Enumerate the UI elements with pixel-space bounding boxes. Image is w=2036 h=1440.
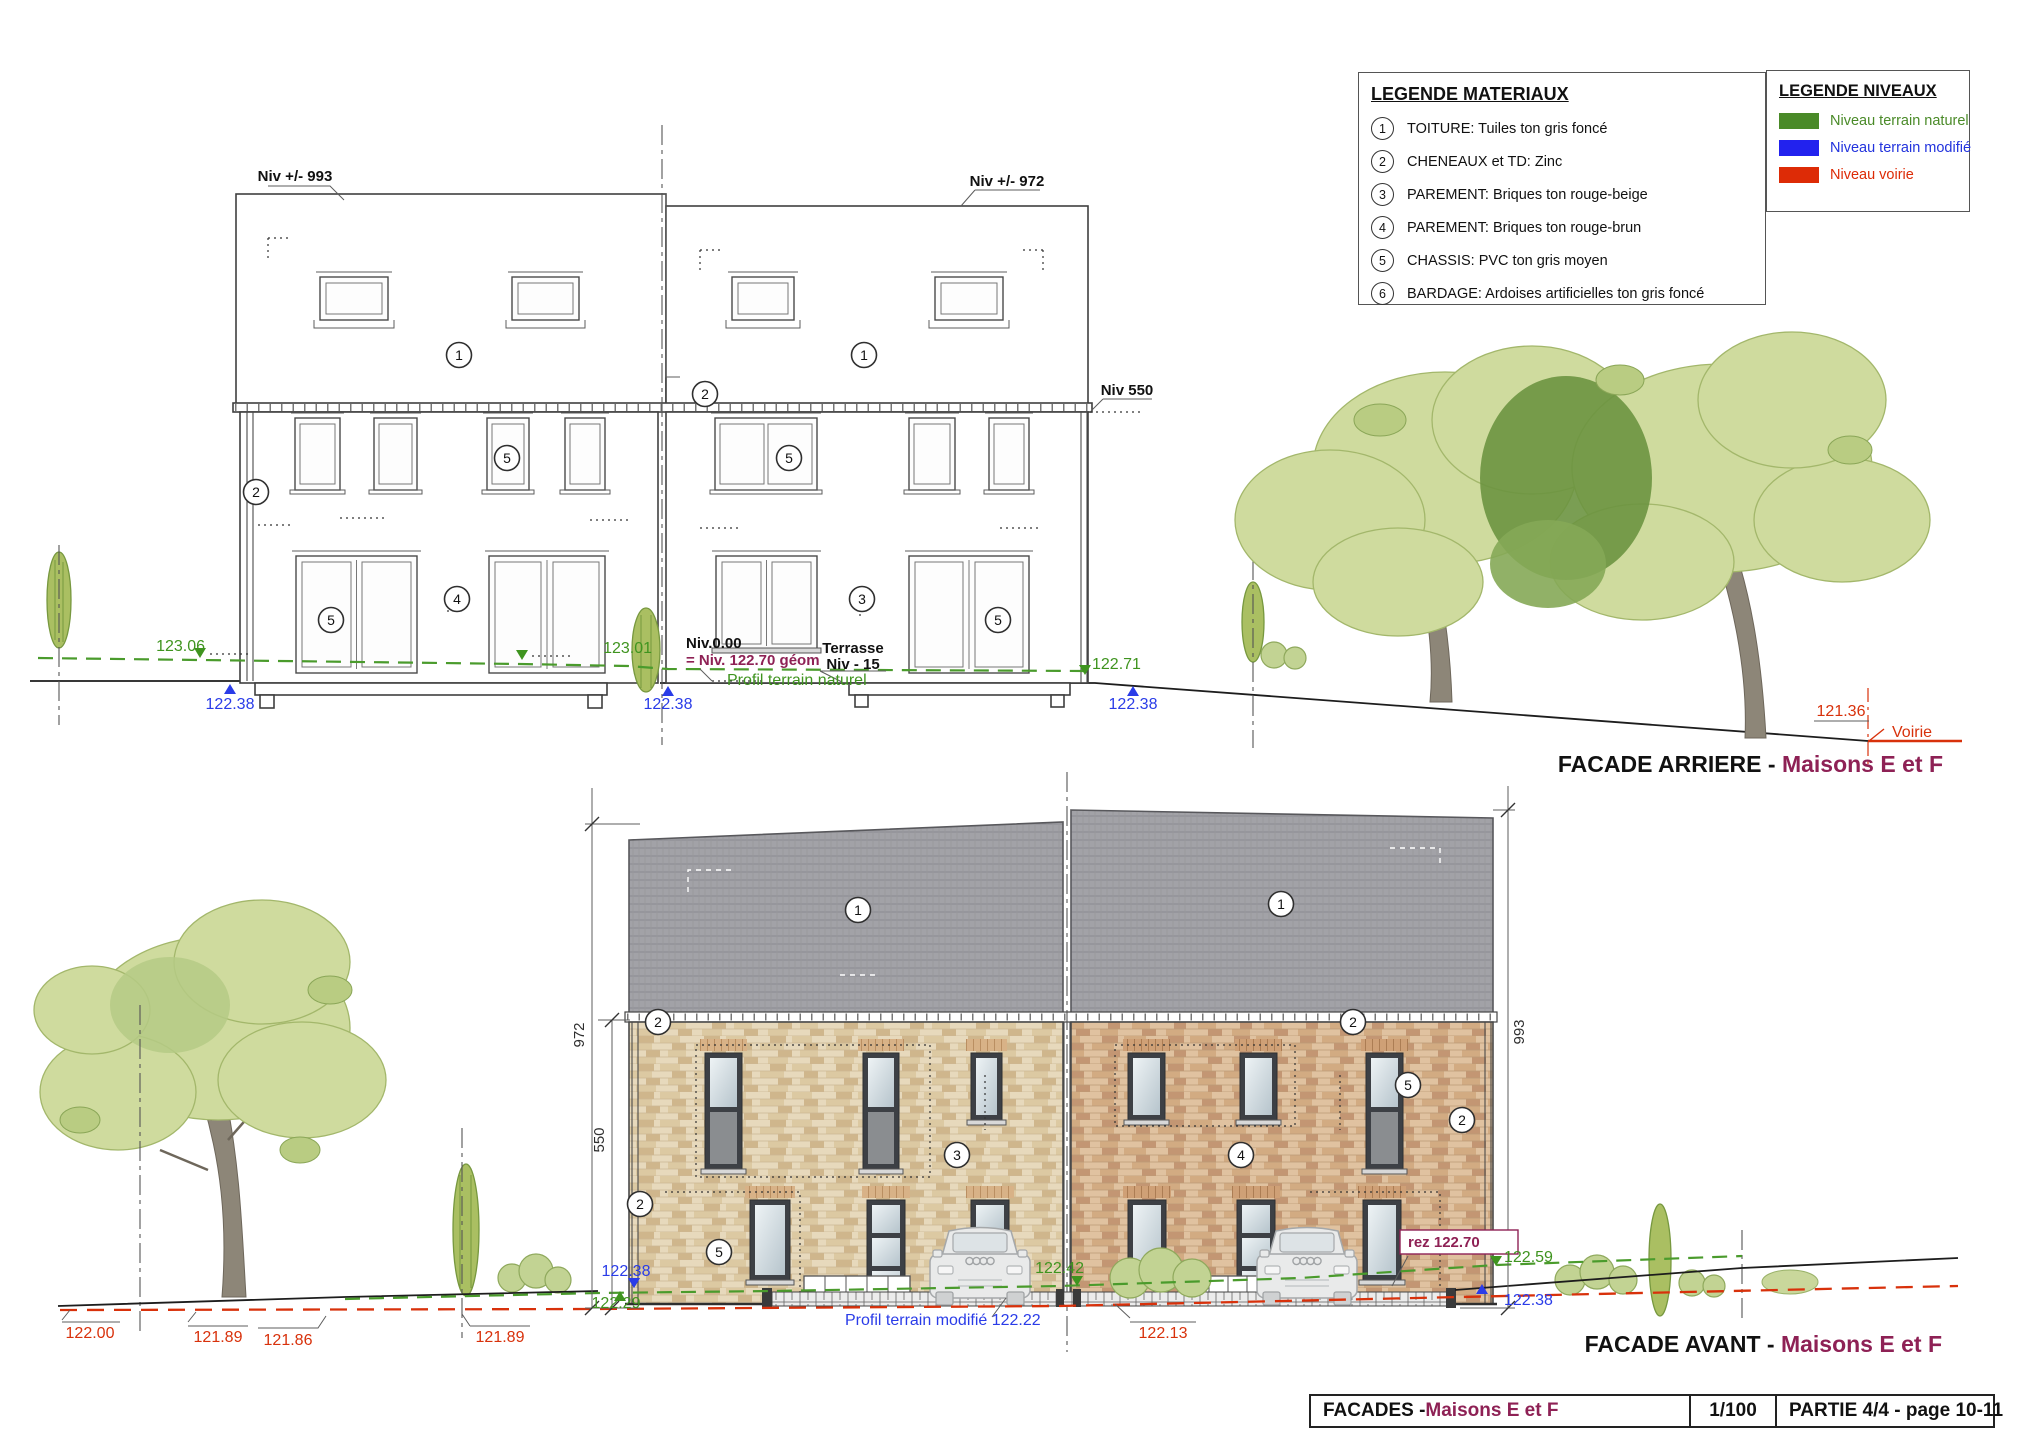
circled-number-icon: 2 bbox=[1371, 150, 1394, 173]
marker: 1 bbox=[1277, 896, 1285, 912]
title-block-title: FACADES - Maisons E et F bbox=[1311, 1396, 1689, 1426]
legend-item-label: PAREMENT: Briques ton rouge-brun bbox=[1407, 220, 1641, 236]
elev-122-38-front-left: 122.38 bbox=[602, 1263, 651, 1280]
sheet-title-prefix: FACADES - bbox=[1323, 1400, 1425, 1422]
elev-road-0: 122.00 bbox=[66, 1325, 115, 1342]
marker: 2 bbox=[654, 1014, 662, 1030]
marker: 5 bbox=[994, 612, 1002, 628]
legend-item: Niveau voirie bbox=[1779, 167, 1957, 183]
label-niv-550: Niv 550 bbox=[1101, 382, 1154, 399]
label-profil-naturel: Profil terrain naturel bbox=[727, 672, 867, 689]
legend-item-label: BARDAGE: Ardoises artificielles ton gris… bbox=[1407, 286, 1704, 302]
label-terrasse-niv: Niv - 15 bbox=[826, 656, 879, 673]
marker: 5 bbox=[327, 612, 335, 628]
architectural-drawing-sheet: 1 1 2 2 5 5 5 4 3 5 Niv +/- 993 Niv +/- … bbox=[0, 0, 2036, 1440]
label-niv-geom: = Niv. 122.70 géom bbox=[686, 652, 820, 669]
marker: 2 bbox=[701, 386, 709, 402]
elev-121-36: 121.36 bbox=[1817, 703, 1866, 720]
marker: 5 bbox=[715, 1244, 723, 1260]
circled-number-icon: 5 bbox=[1371, 249, 1394, 272]
marker: 2 bbox=[1458, 1112, 1466, 1128]
legend-item-label: TOITURE: Tuiles ton gris foncé bbox=[1407, 121, 1607, 137]
blue-swatch-icon bbox=[1779, 140, 1819, 156]
caption-facade-avant: FACADE AVANT - Maisons E et F bbox=[1585, 1331, 1942, 1357]
legend-item-label: CHASSIS: PVC ton gris moyen bbox=[1407, 253, 1608, 269]
marker: 5 bbox=[1404, 1077, 1412, 1093]
legend-item: Niveau terrain naturel bbox=[1779, 113, 1957, 129]
label-profil-modifie: Profil terrain modifié 122.22 bbox=[845, 1312, 1041, 1329]
legend-materiaux-title: LEGENDE MATERIAUX bbox=[1371, 84, 1753, 105]
elev-122-38-right: 122.38 bbox=[1109, 696, 1158, 713]
marker: 3 bbox=[953, 1147, 961, 1163]
marker: 4 bbox=[1237, 1147, 1245, 1163]
legend-niveaux-title: LEGENDE NIVEAUX bbox=[1779, 82, 1957, 101]
legend-niveaux-panel: LEGENDE NIVEAUX Niveau terrain naturel N… bbox=[1766, 70, 1970, 212]
circled-number-icon: 4 bbox=[1371, 216, 1394, 239]
legend-materiaux-panel: LEGENDE MATERIAUX 1TOITURE: Tuiles ton g… bbox=[1358, 72, 1766, 305]
title-block-scale: 1/100 bbox=[1689, 1396, 1775, 1426]
caption-facade-arriere: FACADE ARRIERE - Maisons E et F bbox=[1558, 751, 1943, 777]
circled-number-icon: 1 bbox=[1371, 117, 1394, 140]
green-swatch-icon bbox=[1779, 113, 1819, 129]
elev-122-71: 122.71 bbox=[1092, 656, 1141, 673]
legend-item: 1TOITURE: Tuiles ton gris foncé bbox=[1371, 117, 1753, 140]
legend-item: 5CHASSIS: PVC ton gris moyen bbox=[1371, 249, 1753, 272]
marker: 3 bbox=[858, 591, 866, 607]
tree-icon bbox=[34, 900, 386, 1297]
legend-item: 3PAREMENT: Briques ton rouge-beige bbox=[1371, 183, 1753, 206]
tree-icon bbox=[1235, 332, 1930, 738]
label-voirie: Voirie bbox=[1892, 724, 1932, 741]
marker: 2 bbox=[636, 1196, 644, 1212]
label-niv-972: Niv +/- 972 bbox=[970, 173, 1045, 190]
dim-972: 972 bbox=[571, 1022, 588, 1047]
legend-item: 6BARDAGE: Ardoises artificielles ton gri… bbox=[1371, 282, 1753, 305]
title-block: FACADES - Maisons E et F 1/100 PARTIE 4/… bbox=[1309, 1394, 1995, 1428]
marker: 2 bbox=[252, 484, 260, 500]
elev-122-38-mid: 122.38 bbox=[644, 696, 693, 713]
marker: 2 bbox=[1349, 1014, 1357, 1030]
sheet-title-name: Maisons E et F bbox=[1425, 1400, 1558, 1422]
elev-122-29: 122.29 bbox=[592, 1295, 641, 1312]
marker: 5 bbox=[503, 450, 511, 466]
elev-122-38-left: 122.38 bbox=[206, 696, 255, 713]
elev-122-38-front-right: 122.38 bbox=[1504, 1292, 1553, 1309]
dim-550: 550 bbox=[591, 1127, 608, 1152]
elev-road-3: 121.89 bbox=[476, 1329, 525, 1346]
title-block-part: PARTIE 4/4 - page 10-11 bbox=[1775, 1396, 1993, 1426]
legend-item: 2CHENEAUX et TD: Zinc bbox=[1371, 150, 1753, 173]
circled-number-icon: 3 bbox=[1371, 183, 1394, 206]
dim-993: 993 bbox=[1511, 1019, 1528, 1044]
elev-122-59: 122.59 bbox=[1504, 1249, 1553, 1266]
facade-avant-drawing: 972 550 993 1 1 2 2 2 2 5 3 4 5 rez 122.… bbox=[34, 772, 1958, 1357]
elev-122-13: 122.13 bbox=[1139, 1325, 1188, 1342]
legend-item: Niveau terrain modifié bbox=[1779, 140, 1957, 156]
label-rez: rez 122.70 bbox=[1408, 1234, 1480, 1251]
elev-123-01: 123.01 bbox=[603, 640, 652, 657]
label-terrasse: Terrasse bbox=[822, 640, 883, 657]
marker: 5 bbox=[785, 450, 793, 466]
legend-item-label: PAREMENT: Briques ton rouge-beige bbox=[1407, 187, 1648, 203]
elev-road-2: 121.86 bbox=[264, 1332, 313, 1349]
marker: 4 bbox=[453, 591, 461, 607]
marker: 1 bbox=[854, 902, 862, 918]
label-niv-000: Niv.0.00 bbox=[686, 635, 742, 652]
legend-item: 4PAREMENT: Briques ton rouge-brun bbox=[1371, 216, 1753, 239]
label-niv-993: Niv +/- 993 bbox=[258, 168, 333, 185]
legend-item-label: Niveau voirie bbox=[1830, 167, 1914, 183]
marker: 1 bbox=[860, 347, 868, 363]
left-house-roof-front bbox=[629, 822, 1063, 1014]
right-house-roof-rear bbox=[666, 206, 1088, 410]
left-house-roof-rear bbox=[236, 194, 666, 410]
elev-123-06: 123.06 bbox=[156, 638, 205, 655]
legend-item-label: Niveau terrain naturel bbox=[1830, 113, 1969, 129]
circled-number-icon: 6 bbox=[1371, 282, 1394, 305]
elev-122-42: 122.42 bbox=[1035, 1260, 1084, 1277]
elev-road-1: 121.89 bbox=[194, 1329, 243, 1346]
marker: 1 bbox=[455, 347, 463, 363]
legend-item-label: Niveau terrain modifié bbox=[1830, 140, 1971, 156]
legend-item-label: CHENEAUX et TD: Zinc bbox=[1407, 154, 1562, 170]
red-swatch-icon bbox=[1779, 167, 1819, 183]
